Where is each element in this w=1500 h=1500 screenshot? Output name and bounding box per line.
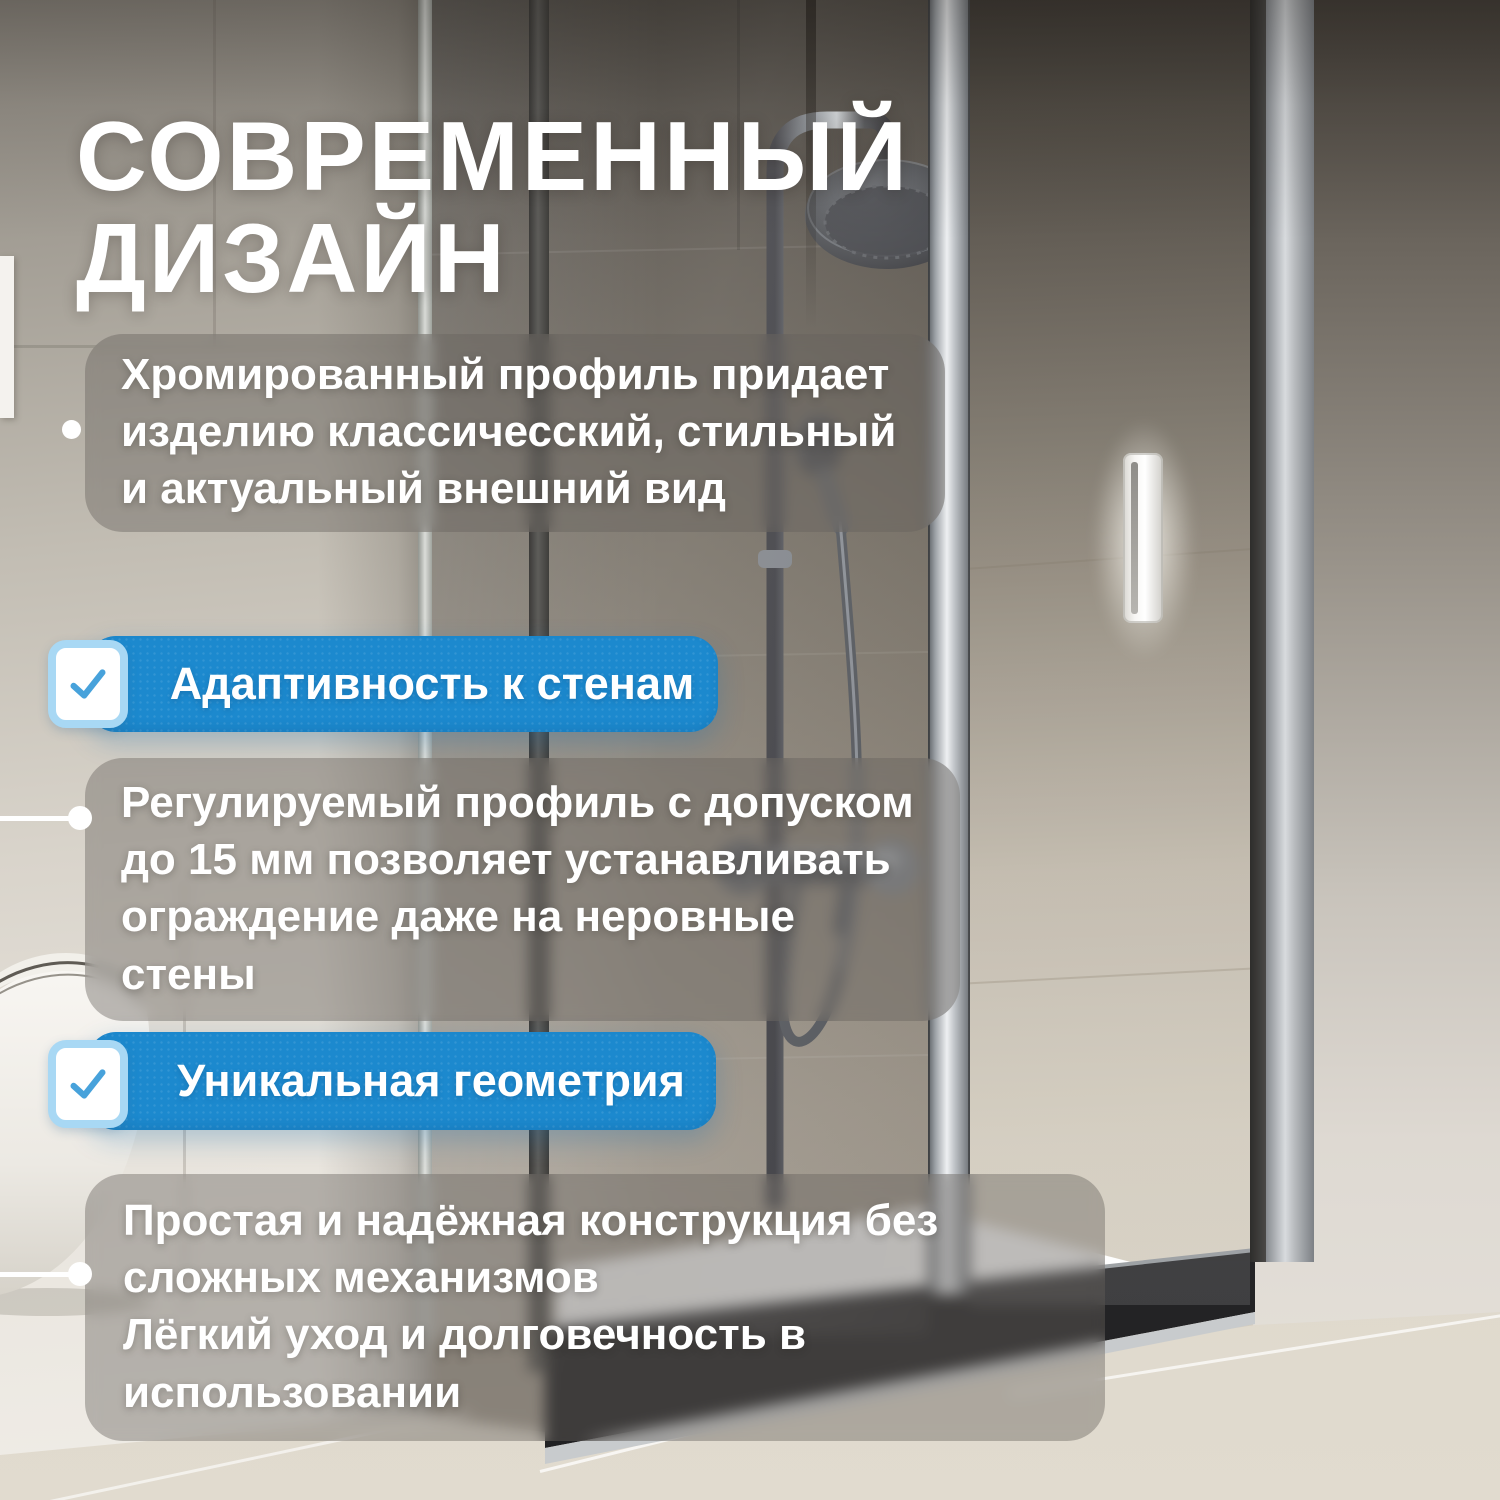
page-title-line2: ДИЗАЙН — [76, 203, 508, 313]
connector-dot — [68, 1262, 92, 1286]
checkbox-checked-icon — [48, 1040, 128, 1128]
badge-geometry: Уникальная геометрия — [88, 1032, 716, 1130]
flush-plate — [0, 256, 14, 418]
product-card: СОВРЕМЕННЫЙ ДИЗАЙН Хромированный профиль… — [0, 0, 1500, 1500]
feature-panel-design: Хромированный профиль придает изделию кл… — [85, 334, 945, 532]
right-frame-profile-chrome — [1266, 0, 1314, 1262]
connector-line — [0, 816, 70, 821]
page-title: СОВРЕМЕННЫЙ ДИЗАЙН — [76, 106, 910, 310]
feature-text-line2: Лёгкий уход и долговечность в использова… — [123, 1306, 1077, 1420]
page-title-line1: СОВРЕМЕННЫЙ — [76, 101, 910, 211]
door-handle-groove — [1131, 462, 1138, 614]
right-frame-profile-dark — [1250, 0, 1266, 1262]
badge-label: Адаптивность к стенам — [170, 658, 695, 710]
connector-dot — [68, 806, 92, 830]
checkbox-checked-icon — [48, 640, 128, 728]
feature-text-line1: Простая и надёжная конструкция без сложн… — [123, 1192, 1077, 1306]
feature-panel-construction: Простая и надёжная конструкция без сложн… — [85, 1174, 1105, 1441]
chrome-center-profile — [928, 0, 970, 1295]
feature-text: Хромированный профиль придает изделию кл… — [121, 350, 896, 513]
connector-line — [0, 1272, 70, 1277]
feature-text: Регулируемый профиль с допуском до 15 мм… — [121, 778, 914, 999]
door-handle — [1123, 453, 1163, 623]
feature-panel-adjustable: Регулируемый профиль с допуском до 15 мм… — [85, 758, 960, 1021]
bullet-dot — [62, 420, 81, 439]
badge-label: Уникальная геометрия — [177, 1055, 685, 1107]
badge-adaptivity: Адаптивность к стенам — [88, 636, 718, 732]
